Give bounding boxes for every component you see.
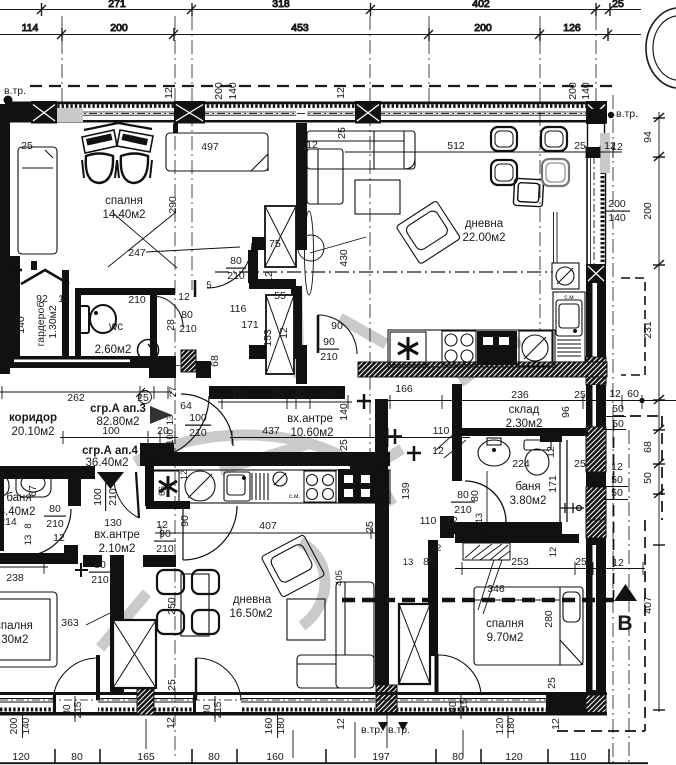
svg-text:12: 12 — [306, 139, 318, 151]
svg-text:407: 407 — [642, 596, 654, 614]
svg-text:35: 35 — [272, 389, 284, 401]
svg-text:120: 120 — [505, 751, 523, 763]
svg-text:90: 90 — [324, 389, 336, 401]
svg-text:80: 80 — [62, 704, 73, 716]
svg-text:28: 28 — [165, 319, 177, 331]
svg-text:140: 140 — [580, 82, 592, 100]
svg-text:407: 407 — [259, 520, 277, 532]
svg-text:80: 80 — [202, 704, 213, 716]
svg-text:12: 12 — [335, 718, 347, 730]
svg-text:280: 280 — [543, 610, 555, 628]
svg-text:25: 25 — [574, 389, 586, 401]
svg-text:290: 290 — [167, 196, 179, 214]
svg-text:2.30м2: 2.30м2 — [506, 418, 543, 430]
svg-text:25: 25 — [364, 521, 376, 533]
svg-text:130: 130 — [104, 517, 122, 529]
svg-text:баня: баня — [515, 481, 540, 493]
svg-text:спалня: спалня — [105, 195, 143, 207]
svg-text:200: 200 — [474, 22, 492, 34]
svg-text:гардероб: гардероб — [35, 302, 47, 347]
svg-text:14.40м2: 14.40м2 — [102, 209, 145, 221]
svg-text:80: 80 — [423, 556, 435, 568]
svg-text:75: 75 — [269, 238, 281, 250]
svg-text:318: 318 — [272, 0, 290, 10]
svg-text:в.тр.: в.тр. — [616, 108, 638, 120]
svg-text:126: 126 — [563, 22, 581, 34]
svg-text:дневна: дневна — [465, 218, 504, 230]
svg-text:вх.антре: вх.антре — [94, 529, 140, 541]
svg-text:12: 12 — [609, 388, 621, 400]
svg-text:12: 12 — [278, 327, 290, 339]
svg-text:80: 80 — [49, 503, 61, 515]
svg-text:100: 100 — [92, 488, 104, 506]
svg-text:110: 110 — [433, 425, 450, 437]
svg-text:64: 64 — [180, 400, 192, 412]
svg-text:90: 90 — [179, 515, 191, 527]
svg-text:231: 231 — [642, 321, 654, 339]
svg-text:100: 100 — [189, 412, 207, 424]
svg-text:210: 210 — [107, 488, 119, 506]
svg-text:2.10м2: 2.10м2 — [99, 543, 136, 555]
svg-text:22.00м2: 22.00м2 — [462, 232, 505, 244]
svg-text:224: 224 — [512, 458, 530, 470]
svg-text:12: 12 — [53, 532, 65, 544]
svg-text:в.тр.: в.тр. — [4, 85, 26, 97]
svg-text:92: 92 — [36, 293, 48, 305]
svg-text:210: 210 — [227, 270, 245, 282]
svg-text:153: 153 — [262, 329, 274, 347]
svg-text:271: 271 — [108, 0, 126, 10]
svg-text:13: 13 — [165, 415, 176, 426]
svg-text:80: 80 — [71, 751, 83, 763]
svg-text:в.тр.: в.тр. — [388, 724, 410, 736]
svg-text:120: 120 — [12, 751, 30, 763]
svg-text:60: 60 — [627, 388, 639, 400]
svg-text:171: 171 — [241, 319, 259, 331]
svg-text:100: 100 — [165, 429, 176, 445]
svg-text:80: 80 — [181, 309, 193, 321]
svg-text:12: 12 — [263, 271, 275, 283]
svg-text:9.70м2: 9.70м2 — [487, 632, 524, 644]
svg-text:116: 116 — [230, 303, 247, 315]
svg-text:2.60м2: 2.60м2 — [95, 344, 132, 356]
svg-text:12: 12 — [165, 717, 177, 729]
svg-text:160: 160 — [266, 751, 284, 763]
svg-text:210: 210 — [156, 543, 174, 555]
svg-text:80: 80 — [208, 751, 220, 763]
svg-text:165: 165 — [137, 751, 155, 763]
svg-text:8: 8 — [23, 523, 34, 528]
svg-text:497: 497 — [201, 141, 219, 153]
svg-text:67: 67 — [27, 485, 39, 497]
svg-text:120: 120 — [495, 717, 506, 734]
svg-text:12: 12 — [163, 87, 175, 99]
svg-text:214: 214 — [0, 516, 17, 528]
svg-text:140: 140 — [227, 82, 239, 100]
svg-text:110: 110 — [570, 751, 587, 763]
svg-text:253: 253 — [511, 556, 529, 568]
svg-text:166: 166 — [395, 383, 413, 395]
svg-text:27: 27 — [168, 387, 179, 398]
svg-text:5: 5 — [206, 280, 211, 291]
svg-text:80: 80 — [448, 701, 459, 713]
svg-text:80: 80 — [230, 255, 242, 267]
svg-text:238: 238 — [6, 572, 24, 584]
svg-text:200: 200 — [213, 82, 225, 100]
svg-text:171: 171 — [547, 475, 559, 493]
svg-text:363: 363 — [61, 617, 79, 629]
svg-text:96: 96 — [560, 406, 572, 418]
svg-text:спалня: спалня — [0, 620, 33, 632]
svg-text:430: 430 — [338, 249, 350, 267]
svg-text:66: 66 — [157, 486, 167, 496]
svg-text:453: 453 — [291, 22, 309, 34]
svg-text:68: 68 — [209, 355, 221, 367]
svg-text:512: 512 — [447, 140, 465, 152]
svg-text:210: 210 — [179, 323, 197, 335]
svg-text:110: 110 — [420, 515, 437, 527]
svg-text:13: 13 — [474, 513, 484, 523]
svg-text:68: 68 — [642, 441, 654, 453]
svg-text:25: 25 — [575, 556, 587, 568]
svg-text:25: 25 — [574, 140, 586, 152]
svg-text:3.80м2: 3.80м2 — [510, 495, 547, 507]
svg-text:сгр.А ап.4: сгр.А ап.4 — [82, 445, 138, 457]
svg-text:114: 114 — [22, 22, 39, 34]
svg-text:80: 80 — [94, 559, 106, 571]
svg-text:200: 200 — [608, 198, 626, 210]
svg-text:16.50м2: 16.50м2 — [229, 608, 272, 620]
svg-text:спалня: спалня — [486, 618, 524, 630]
svg-text:25: 25 — [574, 458, 586, 470]
svg-text:210: 210 — [91, 574, 109, 586]
svg-text:50: 50 — [642, 472, 654, 484]
svg-text:12: 12 — [545, 446, 557, 458]
svg-text:12: 12 — [548, 547, 559, 558]
svg-text:200: 200 — [642, 202, 654, 220]
svg-text:262: 262 — [67, 392, 85, 404]
svg-text:25: 25 — [166, 679, 178, 691]
svg-text:200: 200 — [9, 717, 20, 734]
svg-text:100: 100 — [102, 425, 120, 437]
svg-text:12: 12 — [604, 140, 616, 152]
svg-text:25: 25 — [21, 140, 33, 152]
svg-text:55: 55 — [274, 290, 286, 302]
svg-text:140: 140 — [15, 316, 27, 334]
svg-text:12: 12 — [431, 543, 442, 554]
svg-text:сгр.А ап.3: сгр.А ап.3 — [90, 403, 146, 415]
svg-text:210: 210 — [46, 518, 64, 530]
svg-text:236: 236 — [511, 389, 529, 401]
svg-text:210: 210 — [189, 427, 207, 439]
svg-text:25: 25 — [336, 127, 348, 139]
svg-text:12: 12 — [446, 515, 458, 527]
svg-text:80: 80 — [452, 751, 464, 763]
svg-text:склад: склад — [509, 404, 540, 416]
svg-text:402: 402 — [472, 0, 490, 10]
svg-text:25: 25 — [338, 439, 350, 451]
svg-text:25: 25 — [546, 677, 558, 689]
svg-text:36.40м2: 36.40м2 — [85, 457, 128, 469]
svg-text:1.30м2: 1.30м2 — [47, 305, 59, 339]
svg-text:80: 80 — [469, 490, 481, 502]
svg-text:12: 12 — [432, 445, 444, 457]
svg-text:80: 80 — [457, 489, 469, 501]
svg-text:wc: wc — [108, 321, 123, 333]
svg-text:200: 200 — [567, 82, 579, 100]
svg-text:вх.антре: вх.антре — [287, 413, 333, 425]
svg-text:94: 94 — [642, 131, 654, 143]
svg-text:20.10м2: 20.10м2 — [11, 426, 54, 438]
svg-text:90: 90 — [159, 528, 171, 540]
svg-text:B: B — [617, 612, 632, 635]
svg-text:140: 140 — [608, 212, 626, 224]
svg-text:160: 160 — [264, 717, 275, 734]
svg-text:25: 25 — [612, 0, 624, 10]
svg-text:250: 250 — [166, 597, 178, 615]
svg-text:90: 90 — [331, 320, 343, 332]
svg-text:116: 116 — [232, 389, 249, 401]
svg-text:210: 210 — [320, 351, 338, 363]
svg-text:13: 13 — [403, 557, 414, 568]
svg-text:210: 210 — [128, 294, 146, 306]
svg-text:12: 12 — [58, 293, 70, 305]
svg-text:в.тр.: в.тр. — [361, 724, 383, 736]
svg-text:дневна: дневна — [233, 594, 272, 606]
svg-text:13: 13 — [23, 535, 34, 546]
svg-text:12: 12 — [178, 291, 190, 303]
svg-text:32: 32 — [295, 389, 307, 401]
svg-text:4.30м2: 4.30м2 — [0, 634, 28, 646]
svg-text:12: 12 — [612, 557, 624, 569]
svg-text:197: 197 — [372, 751, 390, 763]
svg-text:405: 405 — [334, 570, 345, 586]
svg-text:139: 139 — [400, 482, 412, 500]
svg-text:коридор: коридор — [9, 412, 57, 424]
svg-text:437: 437 — [262, 425, 280, 437]
svg-text:12: 12 — [335, 87, 347, 99]
svg-text:90: 90 — [323, 336, 335, 348]
svg-text:с.м.: с.м. — [289, 493, 301, 500]
svg-text:12: 12 — [550, 718, 562, 730]
svg-text:200: 200 — [110, 22, 128, 34]
svg-text:140: 140 — [338, 403, 350, 421]
